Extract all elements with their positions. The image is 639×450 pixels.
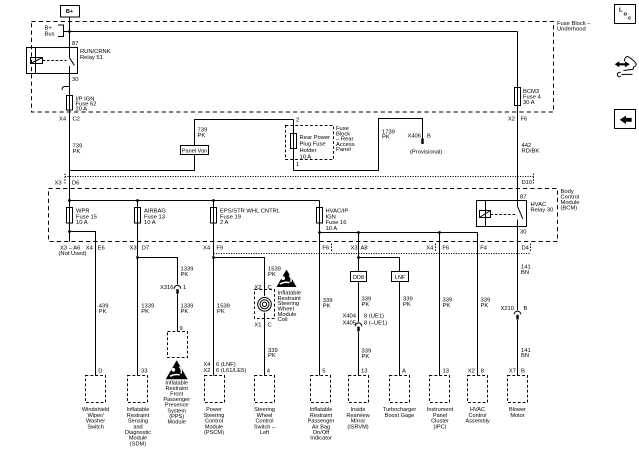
svg-text:X2: X2: [468, 368, 475, 374]
svg-text:PK: PK: [323, 303, 331, 309]
svg-text:F6: F6: [442, 245, 449, 251]
svg-text:X4: X4: [203, 245, 211, 251]
svg-text:X406: X406: [407, 134, 421, 140]
svg-text:Underhood: Underhood: [557, 27, 586, 33]
svg-text:E6: E6: [98, 245, 105, 251]
svg-text:X3: X3: [130, 245, 137, 251]
svg-text:Motor: Motor: [510, 413, 524, 419]
svg-text:X3: X3: [351, 245, 358, 251]
svg-text:Switch: Switch: [87, 424, 103, 430]
svg-text:8 (UE1): 8 (UE1): [364, 313, 384, 319]
svg-text:(PSCM): (PSCM): [204, 430, 224, 436]
svg-text:20 A: 20 A: [76, 106, 88, 112]
svg-text:10 A: 10 A: [144, 220, 156, 226]
svg-text:(ISRVM): (ISRVM): [347, 424, 368, 430]
svg-text:B: B: [521, 368, 525, 374]
svg-text:5: 5: [322, 368, 325, 374]
svg-text:PK: PK: [73, 149, 81, 155]
svg-text:Coil: Coil: [278, 317, 288, 323]
svg-text:PK: PK: [268, 353, 276, 359]
svg-text:X210: X210: [500, 306, 514, 312]
svg-text:1: 1: [296, 162, 299, 168]
svg-text:X1: X1: [254, 323, 261, 329]
svg-text:PK: PK: [481, 303, 489, 309]
svg-text:B: B: [427, 134, 431, 140]
svg-text:(IPC): (IPC): [433, 424, 446, 430]
svg-text:Bus: Bus: [45, 31, 55, 37]
svg-text:Relay 51: Relay 51: [80, 55, 103, 61]
svg-text:PK: PK: [99, 309, 107, 315]
svg-text:13: 13: [443, 368, 449, 374]
svg-text:13: 13: [361, 368, 367, 374]
svg-text:Panel: Panel: [336, 147, 351, 153]
svg-text:30 A: 30 A: [523, 100, 535, 106]
svg-text:RD/BK: RD/BK: [522, 148, 540, 154]
svg-text:Holder: Holder: [300, 148, 317, 154]
svg-text:B: B: [524, 306, 528, 312]
svg-text:A: A: [402, 368, 406, 374]
svg-text:F6: F6: [322, 245, 329, 251]
svg-text:(SDM): (SDM): [130, 441, 146, 447]
svg-text:6 (L61/LE5): 6 (L61/LE5): [216, 368, 246, 374]
svg-text:10 A: 10 A: [300, 154, 312, 160]
svg-text:PK: PK: [382, 135, 390, 141]
svg-text:PK: PK: [181, 272, 189, 278]
svg-text:D10: D10: [522, 180, 533, 186]
svg-text:X2: X2: [203, 368, 210, 374]
svg-text:PK: PK: [443, 303, 451, 309]
svg-text:2 A: 2 A: [220, 220, 229, 226]
svg-text:PK: PK: [217, 309, 225, 315]
svg-text:PK: PK: [198, 133, 206, 139]
svg-text:(Not Used): (Not Used): [59, 251, 87, 257]
svg-text:8 (–UE1): 8 (–UE1): [364, 320, 387, 326]
svg-text:X4: X4: [426, 245, 434, 251]
svg-text:10 A: 10 A: [76, 220, 88, 226]
svg-text:X3: X3: [55, 180, 62, 186]
svg-text:F6: F6: [521, 116, 528, 122]
svg-text:87: 87: [72, 41, 78, 47]
svg-text:X2: X2: [508, 116, 515, 122]
svg-text:X316: X316: [160, 285, 174, 291]
svg-text:PK: PK: [362, 354, 370, 360]
svg-text:Panel Van: Panel Van: [182, 148, 207, 154]
svg-text:PK: PK: [141, 309, 149, 315]
svg-text:30: 30: [72, 77, 78, 83]
svg-text:8: 8: [481, 368, 484, 374]
svg-text:F9: F9: [216, 245, 223, 251]
svg-text:B+: B+: [66, 9, 74, 15]
svg-text:(Provisional): (Provisional): [410, 150, 442, 156]
svg-text:X4: X4: [86, 245, 94, 251]
svg-text:Assembly: Assembly: [465, 419, 489, 425]
svg-text:D: D: [98, 368, 102, 374]
svg-text:D7: D7: [142, 245, 149, 251]
svg-text:Boost Gage: Boost Gage: [385, 413, 415, 419]
svg-text:X7: X7: [509, 368, 516, 374]
svg-text:Relay 30: Relay 30: [531, 208, 554, 214]
svg-text:X4: X4: [59, 116, 67, 122]
svg-text:BN: BN: [521, 270, 529, 276]
svg-text:PK: PK: [181, 309, 189, 315]
svg-text:10 A: 10 A: [326, 226, 338, 232]
svg-text:Left: Left: [260, 430, 270, 436]
svg-text:F4: F4: [480, 245, 488, 251]
svg-text:L: L: [619, 8, 623, 14]
svg-text:DD8: DD8: [353, 275, 364, 281]
svg-text:(BCM): (BCM): [561, 206, 578, 212]
svg-text:o: o: [624, 12, 628, 18]
svg-text:LNF: LNF: [395, 275, 406, 281]
svg-text:C2: C2: [73, 116, 80, 122]
svg-text:30: 30: [520, 229, 526, 235]
svg-text:A8: A8: [361, 245, 368, 251]
svg-text:D6: D6: [72, 180, 79, 186]
svg-text:X405: X405: [342, 320, 356, 326]
svg-text:2: 2: [296, 117, 299, 123]
svg-text:C: C: [268, 323, 272, 329]
svg-text:33: 33: [141, 368, 147, 374]
svg-text:Plug Fuse: Plug Fuse: [300, 142, 326, 148]
svg-text:PK: PK: [362, 302, 370, 308]
svg-text:D4: D4: [522, 245, 530, 251]
svg-text:Module: Module: [168, 419, 186, 425]
svg-text:BN: BN: [521, 353, 529, 359]
svg-text:PK: PK: [403, 302, 411, 308]
svg-text:PK: PK: [268, 272, 276, 278]
svg-text:Indicator: Indicator: [310, 436, 332, 442]
svg-text:X404: X404: [342, 313, 356, 319]
svg-text:Rear Power: Rear Power: [300, 135, 331, 141]
svg-text:87: 87: [520, 195, 526, 201]
svg-text:1: 1: [183, 285, 186, 291]
